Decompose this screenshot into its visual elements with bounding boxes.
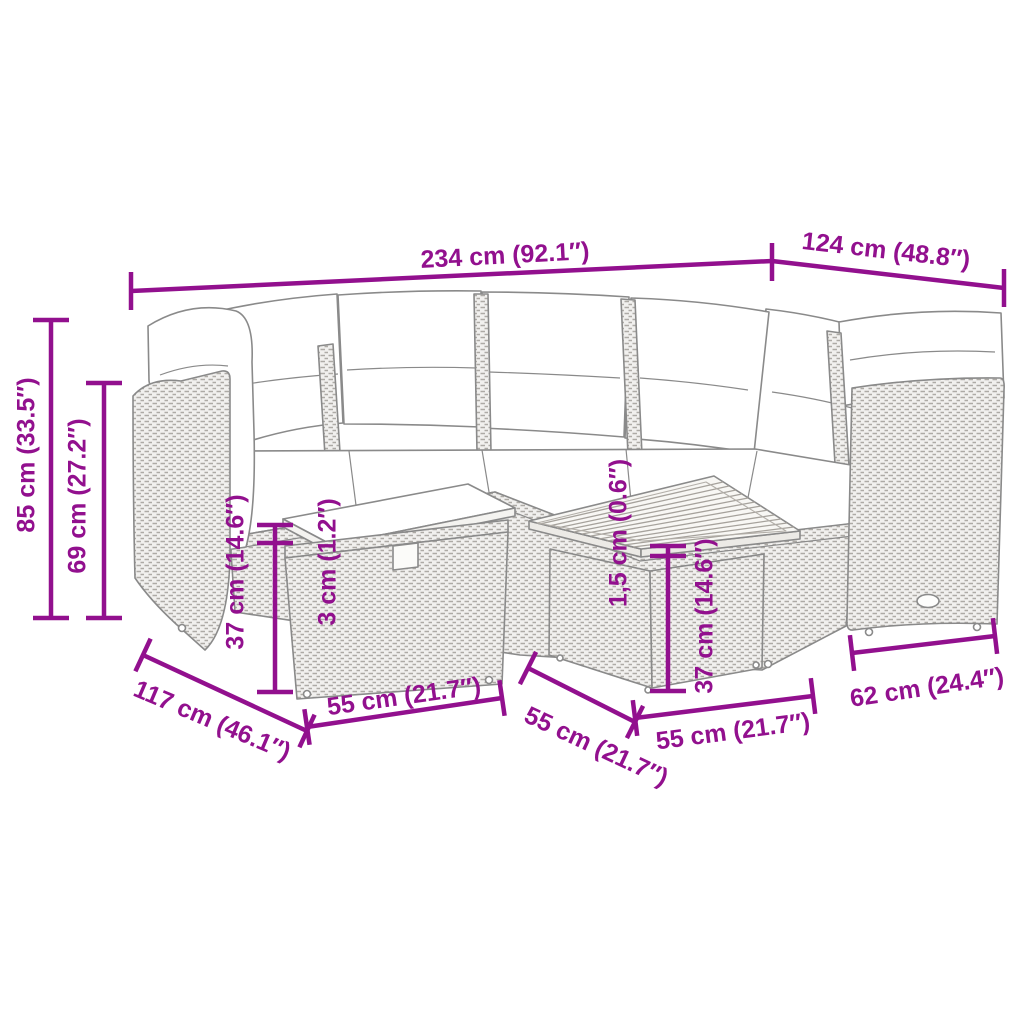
dimension-diagram: 234 cm (92.1″) 124 cm (48.8″) 85 cm (33.… — [0, 0, 1024, 1024]
sofa-set-drawing — [133, 291, 1004, 699]
label-table-top-thickness: 1,5 cm (0.6″) — [605, 459, 634, 607]
sofa-illustration — [0, 0, 1024, 1024]
label-ottoman-height: 37 cm (14.6″) — [222, 494, 251, 649]
back-cushions — [214, 291, 872, 471]
right-arm-panel — [847, 378, 1004, 636]
label-sofa-total-height: 85 cm (33.5″) — [13, 377, 42, 532]
label-table-height: 37 cm (14.6″) — [691, 538, 720, 693]
label-ottoman-cushion-thickness: 3 cm (1.2″) — [314, 498, 343, 625]
label-sofa-back-height: 69 cm (27.2″) — [64, 418, 93, 573]
left-arm-panel — [133, 371, 230, 650]
dim-line-right-width — [772, 261, 1004, 307]
